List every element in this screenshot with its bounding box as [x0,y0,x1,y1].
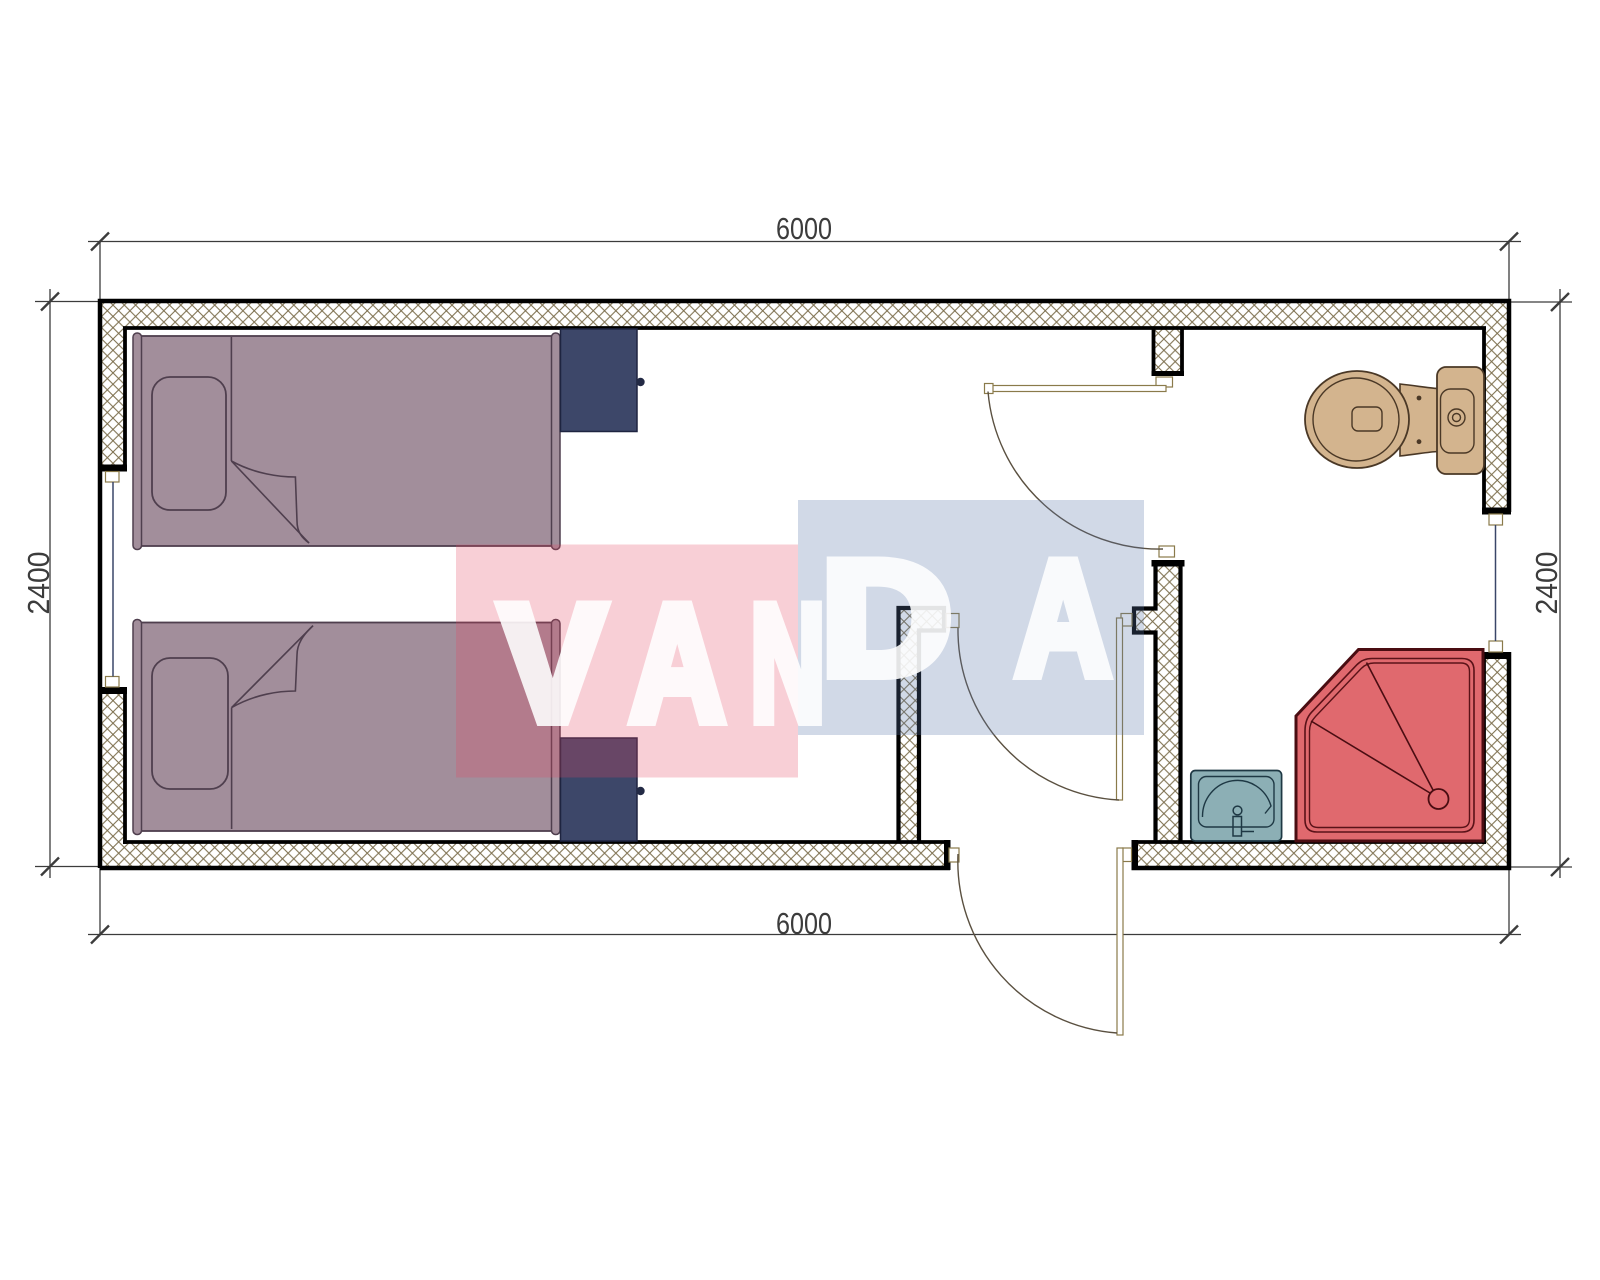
svg-text:D: D [821,529,952,709]
svg-text:A: A [630,571,725,756]
svg-text:6000: 6000 [776,906,832,941]
svg-text:2400: 2400 [1529,552,1564,615]
svg-text:N: N [750,571,825,755]
svg-text:6000: 6000 [776,211,832,246]
svg-text:2400: 2400 [21,552,56,615]
svg-text:A: A [1016,529,1111,709]
svg-text:V: V [500,572,605,756]
